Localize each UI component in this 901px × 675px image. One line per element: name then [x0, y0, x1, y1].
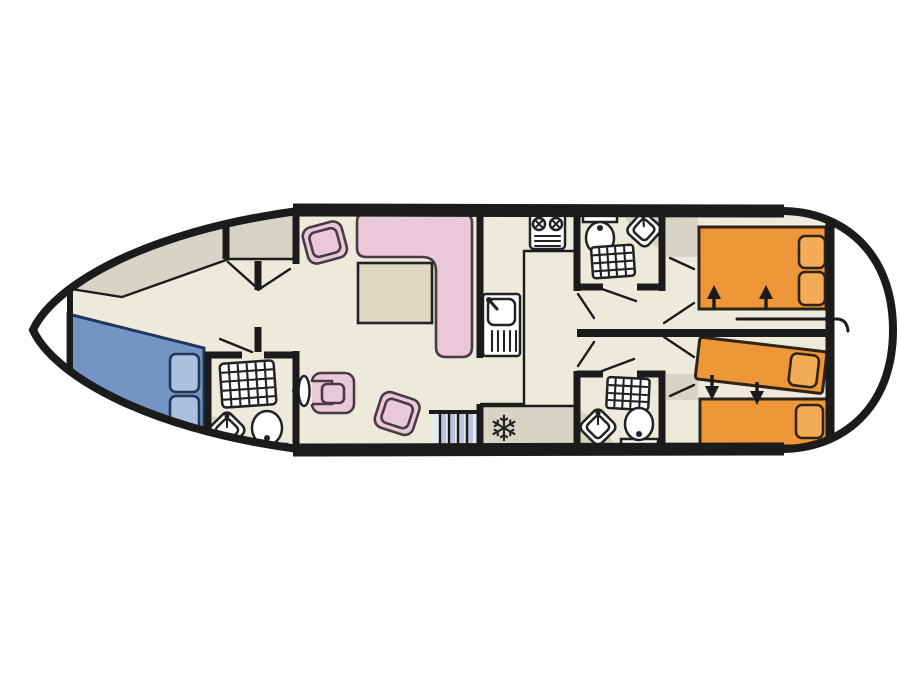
saloon-table: [358, 263, 432, 323]
galley-sink-icon: [483, 294, 520, 356]
aft-double-pillow-2: [799, 272, 825, 305]
forward-shower-tray-icon: [220, 360, 277, 408]
boat-floor-plan: ❄: [0, 0, 901, 675]
aft-double-pillow-1: [799, 236, 825, 268]
boat-floor-plan-page: ❄: [0, 0, 901, 675]
hull-top-rail: [293, 210, 784, 211]
hull-bottom-rail: [293, 449, 784, 450]
bow-bed-pillow-1: [170, 354, 199, 392]
top-shower-tray-icon: [591, 245, 635, 279]
top-wardrobe: [666, 212, 698, 257]
stove-icon: [530, 213, 565, 249]
aft-single-bed-pillow: [796, 405, 823, 438]
bottom-shower-tray-icon: [606, 377, 650, 410]
helm-seat: [308, 373, 354, 413]
aft-angled-bed-pillow: [788, 353, 820, 388]
